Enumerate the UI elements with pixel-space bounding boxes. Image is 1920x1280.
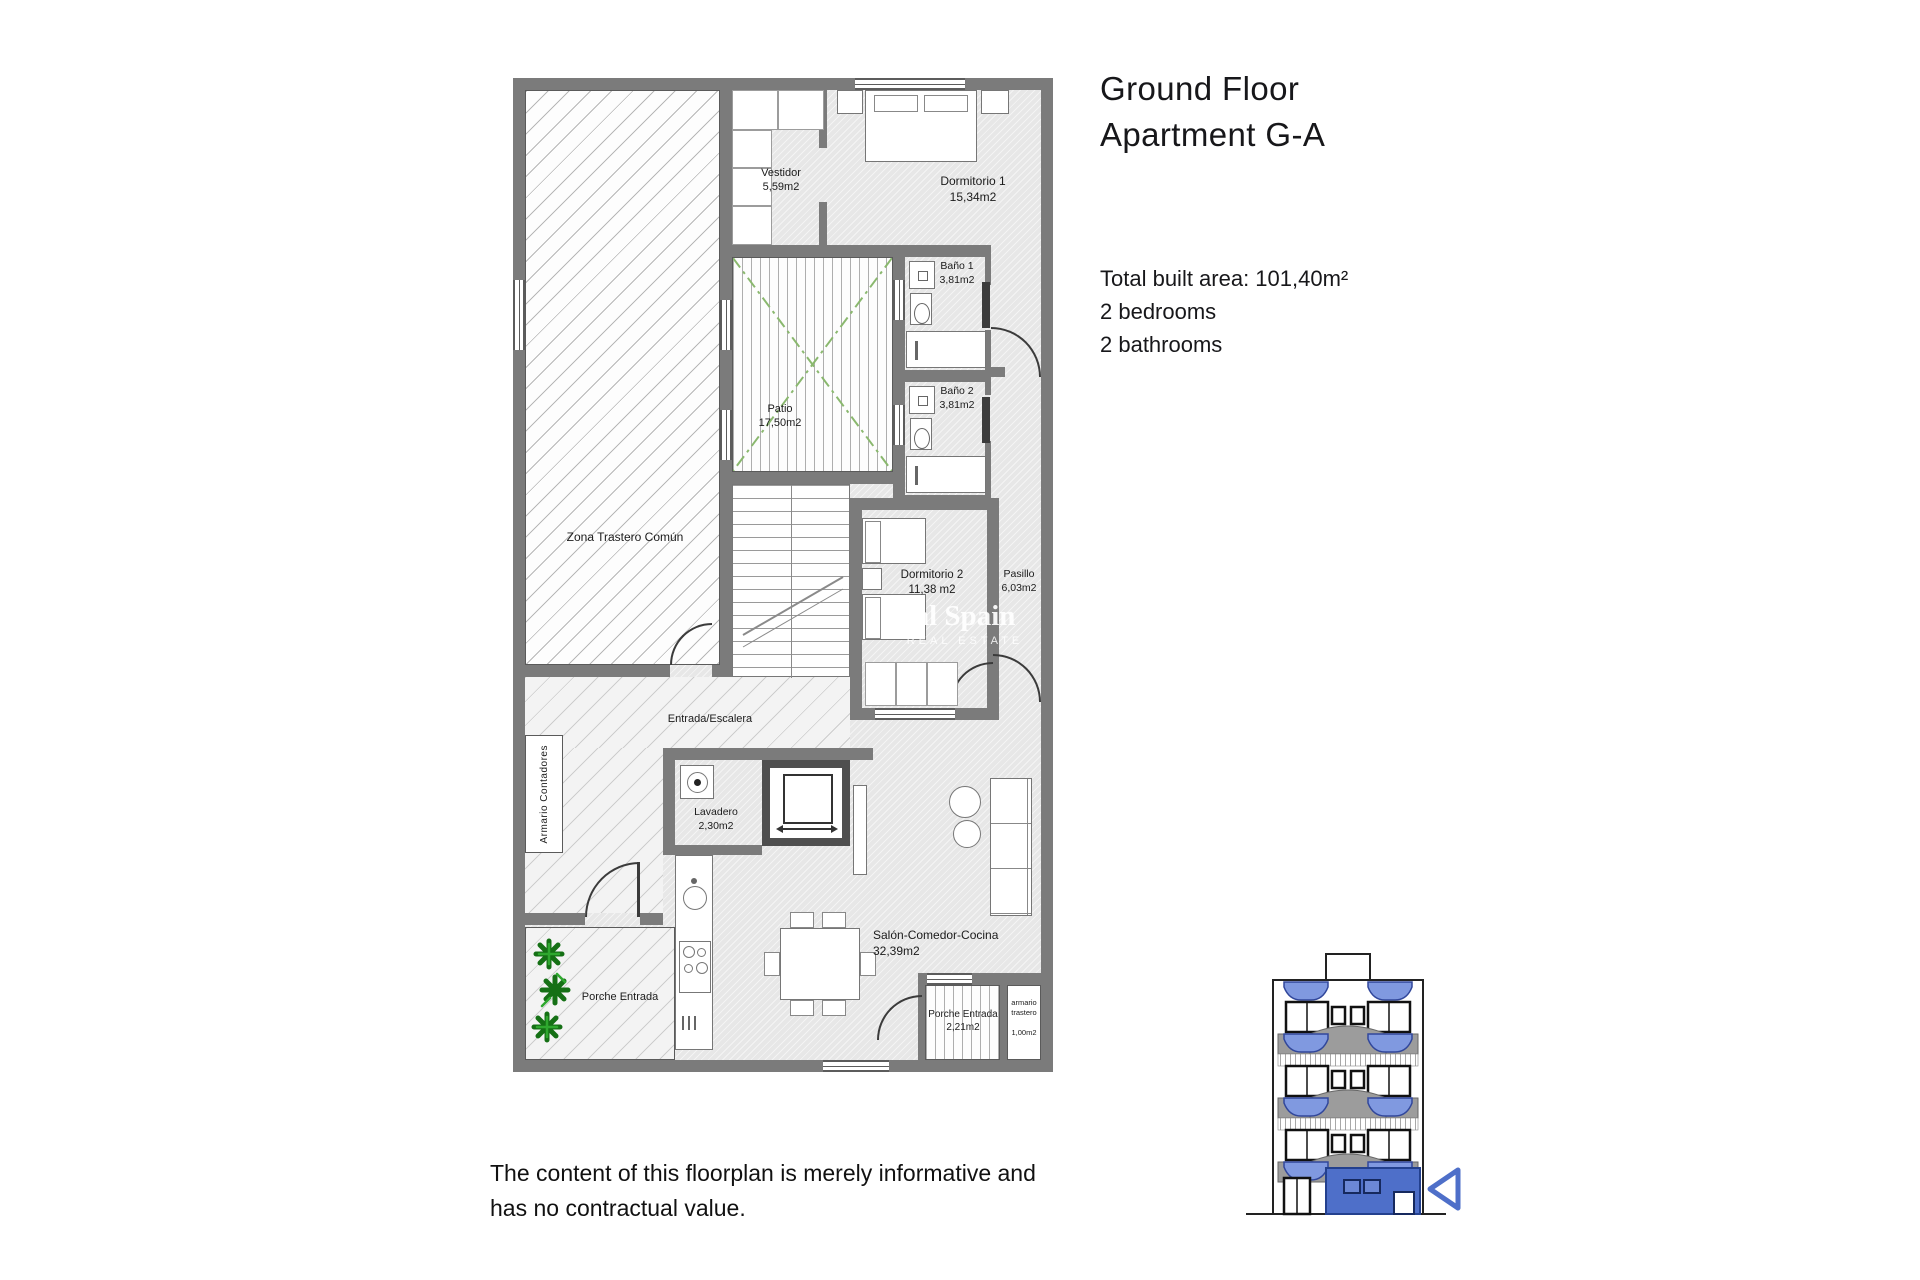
burner (683, 946, 695, 958)
single-bed (862, 594, 926, 640)
wall (720, 90, 732, 677)
wall (712, 665, 720, 677)
wall (905, 370, 985, 382)
wardrobe-cell (896, 662, 927, 706)
burner (697, 948, 706, 957)
staircase (732, 484, 850, 677)
window (823, 1060, 889, 1072)
room-armario-contadores: Armario Contadores (525, 735, 563, 853)
dining-table (780, 928, 860, 1000)
lavadero-label: Lavadero 2,30m2 (675, 806, 757, 833)
sofa (990, 778, 1032, 916)
burner (696, 962, 708, 974)
closet-cell (732, 90, 778, 130)
window (720, 300, 732, 350)
window (513, 280, 525, 350)
stair-break-lines (733, 485, 851, 678)
arrow-right-icon (831, 825, 842, 833)
elevator-car (783, 774, 833, 824)
patio-label: Patio 17,50m2 (740, 402, 820, 431)
bano2-label: Baño 2 3,81m2 (925, 385, 989, 412)
armario-trastero-label: armario trastero 1,00m2 (1007, 998, 1041, 1037)
wall (850, 498, 999, 510)
toilet-icon (910, 293, 932, 325)
elevator (762, 760, 850, 846)
shower-tray (906, 331, 986, 368)
dormitorio1-label: Dormitorio 1 15,34m2 (905, 174, 1041, 205)
window (855, 78, 965, 90)
armario-contadores-label: Armario Contadores (539, 745, 550, 843)
zona-trastero-label: Zona Trastero Común (535, 530, 715, 546)
nightstand (981, 90, 1009, 114)
shower-handle (915, 466, 918, 485)
pasillo-label: Pasillo 6,03m2 (997, 568, 1041, 595)
title-line1: Ground Floor (1100, 66, 1325, 112)
wall (850, 510, 862, 708)
wall (525, 665, 670, 677)
bedrooms-count: 2 bedrooms (1100, 295, 1348, 328)
pillow (874, 95, 918, 112)
chair (790, 1000, 814, 1016)
location-arrow-icon (1430, 1170, 1458, 1208)
title-line2: Apartment G-A (1100, 112, 1325, 158)
single-bed (862, 518, 926, 564)
burner (684, 964, 693, 973)
wall (640, 913, 663, 925)
door-leaf (637, 862, 640, 917)
closet-cell (732, 130, 772, 168)
toilet-bowl (914, 428, 930, 449)
vestidor-label: Vestidor 5,59m2 (741, 166, 821, 195)
washing-machine-icon (680, 765, 714, 799)
toilet-icon (910, 418, 932, 450)
door-arc (991, 327, 1041, 377)
wall (819, 202, 827, 245)
wardrobe-cell (865, 662, 896, 706)
vent-line (694, 1016, 696, 1030)
closet-cell (732, 206, 772, 245)
kitchen-counter (675, 855, 713, 1050)
window (893, 405, 905, 445)
building-elevation (1228, 942, 1468, 1232)
nightstand (837, 90, 863, 114)
wall (663, 760, 675, 855)
elevator-door-track (778, 828, 834, 830)
toilet-bowl (914, 303, 930, 324)
closet-cell (778, 90, 824, 130)
room-zona-trastero (525, 90, 720, 665)
pouf (953, 820, 981, 848)
pillow (924, 95, 968, 112)
dormitorio2-label: Dormitorio 2 11,38 m2 (880, 568, 984, 598)
nightstand (862, 568, 882, 590)
floorplan: Armario Contadores (513, 78, 1053, 1072)
bano1-label: Baño 1 3,81m2 (925, 260, 989, 287)
arrow-left-icon (772, 825, 783, 833)
cabinet (853, 785, 867, 875)
floorplan-page: Armario Contadores (0, 0, 1920, 1280)
sofa-back (1027, 779, 1028, 915)
shower-handle (915, 341, 918, 360)
pouf (949, 786, 981, 818)
window (893, 280, 905, 320)
entrada-label: Entrada/Escalera (645, 712, 775, 726)
window (927, 973, 972, 985)
washer-door (694, 779, 701, 786)
wall (843, 748, 873, 760)
double-bed (865, 90, 977, 162)
patio-diagonals (733, 258, 892, 471)
vent-line (682, 1016, 684, 1030)
kitchen-sink-icon (683, 886, 707, 910)
wall (663, 845, 762, 855)
chair (790, 912, 814, 928)
total-area: Total built area: 101,40m² (1100, 262, 1348, 295)
sliding-door (982, 282, 990, 328)
porche-left-label: Porche Entrada (567, 990, 673, 1004)
faucet (691, 878, 697, 884)
room-patio (732, 257, 893, 472)
pillow (865, 521, 881, 563)
pillow (865, 597, 881, 639)
wall (732, 245, 985, 257)
chair (822, 912, 846, 928)
bathrooms-count: 2 bathrooms (1100, 328, 1348, 361)
salon-label: Salón-Comedor-Cocina 32,39m2 (873, 928, 1043, 959)
wardrobe-cell (927, 662, 958, 706)
wall (720, 472, 905, 484)
door-arc (993, 654, 1041, 702)
chair (764, 952, 780, 976)
apartment-info: Total built area: 101,40m² 2 bedrooms 2 … (1100, 262, 1348, 361)
page-title: Ground Floor Apartment G-A (1100, 66, 1325, 158)
chair (822, 1000, 846, 1016)
window (720, 410, 732, 460)
stove-icon (679, 941, 711, 993)
window (875, 708, 955, 720)
wall (663, 748, 843, 760)
shower-tray (906, 456, 986, 493)
vent-line (688, 1016, 690, 1030)
disclaimer: The content of this floorplan is merely … (490, 1156, 1036, 1225)
porche-south-label: Porche Entrada 2,21m2 (923, 1008, 1003, 1034)
door-arc (877, 995, 922, 1040)
wall (525, 913, 585, 925)
